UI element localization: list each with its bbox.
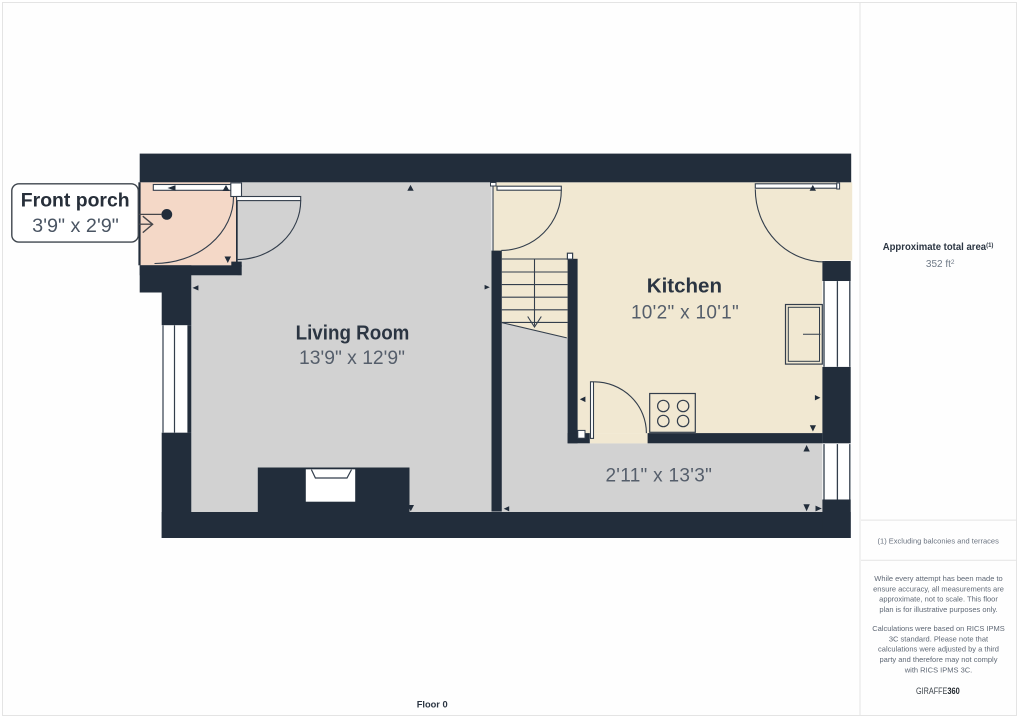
svg-text:13'9" x 12'9": 13'9" x 12'9" <box>299 348 405 369</box>
svg-text:10'2" x 10'1": 10'2" x 10'1" <box>631 303 739 324</box>
svg-text:Living Room: Living Room <box>296 322 410 345</box>
svg-text:ensure accuracy, all measureme: ensure accuracy, all measurements are <box>873 584 1004 593</box>
svg-text:Approximate total area(1): Approximate total area(1) <box>883 242 994 253</box>
svg-text:plan is for illustrative purpo: plan is for illustrative purposes only. <box>879 605 997 614</box>
svg-text:Kitchen: Kitchen <box>647 275 722 298</box>
svg-text:Front porch: Front porch <box>21 190 130 212</box>
svg-text:While every attempt has been m: While every attempt has been made to <box>874 574 1002 583</box>
svg-text:calculations were adjusted by: calculations were adjusted by a third <box>878 645 999 654</box>
svg-text:Floor 0: Floor 0 <box>417 699 448 709</box>
svg-text:3C standard. Please note that: 3C standard. Please note that <box>889 634 989 643</box>
svg-text:with RICS IPMS 3C.: with RICS IPMS 3C. <box>904 665 973 674</box>
svg-text:3'9" x 2'9": 3'9" x 2'9" <box>32 216 119 237</box>
svg-text:approximate, not to scale. Thi: approximate, not to scale. This floor <box>879 595 998 604</box>
svg-text:party and therefore may not co: party and therefore may not comply <box>880 655 998 664</box>
svg-text:Calculations were based on RIC: Calculations were based on RICS IPMS <box>872 624 1005 633</box>
svg-text:352 ft2: 352 ft2 <box>926 259 955 270</box>
svg-text:GIRAFFE360: GIRAFFE360 <box>916 686 960 696</box>
svg-text:(1) Excluding balconies and te: (1) Excluding balconies and terraces <box>878 537 1000 546</box>
svg-text:2'11" x 13'3": 2'11" x 13'3" <box>605 466 712 487</box>
